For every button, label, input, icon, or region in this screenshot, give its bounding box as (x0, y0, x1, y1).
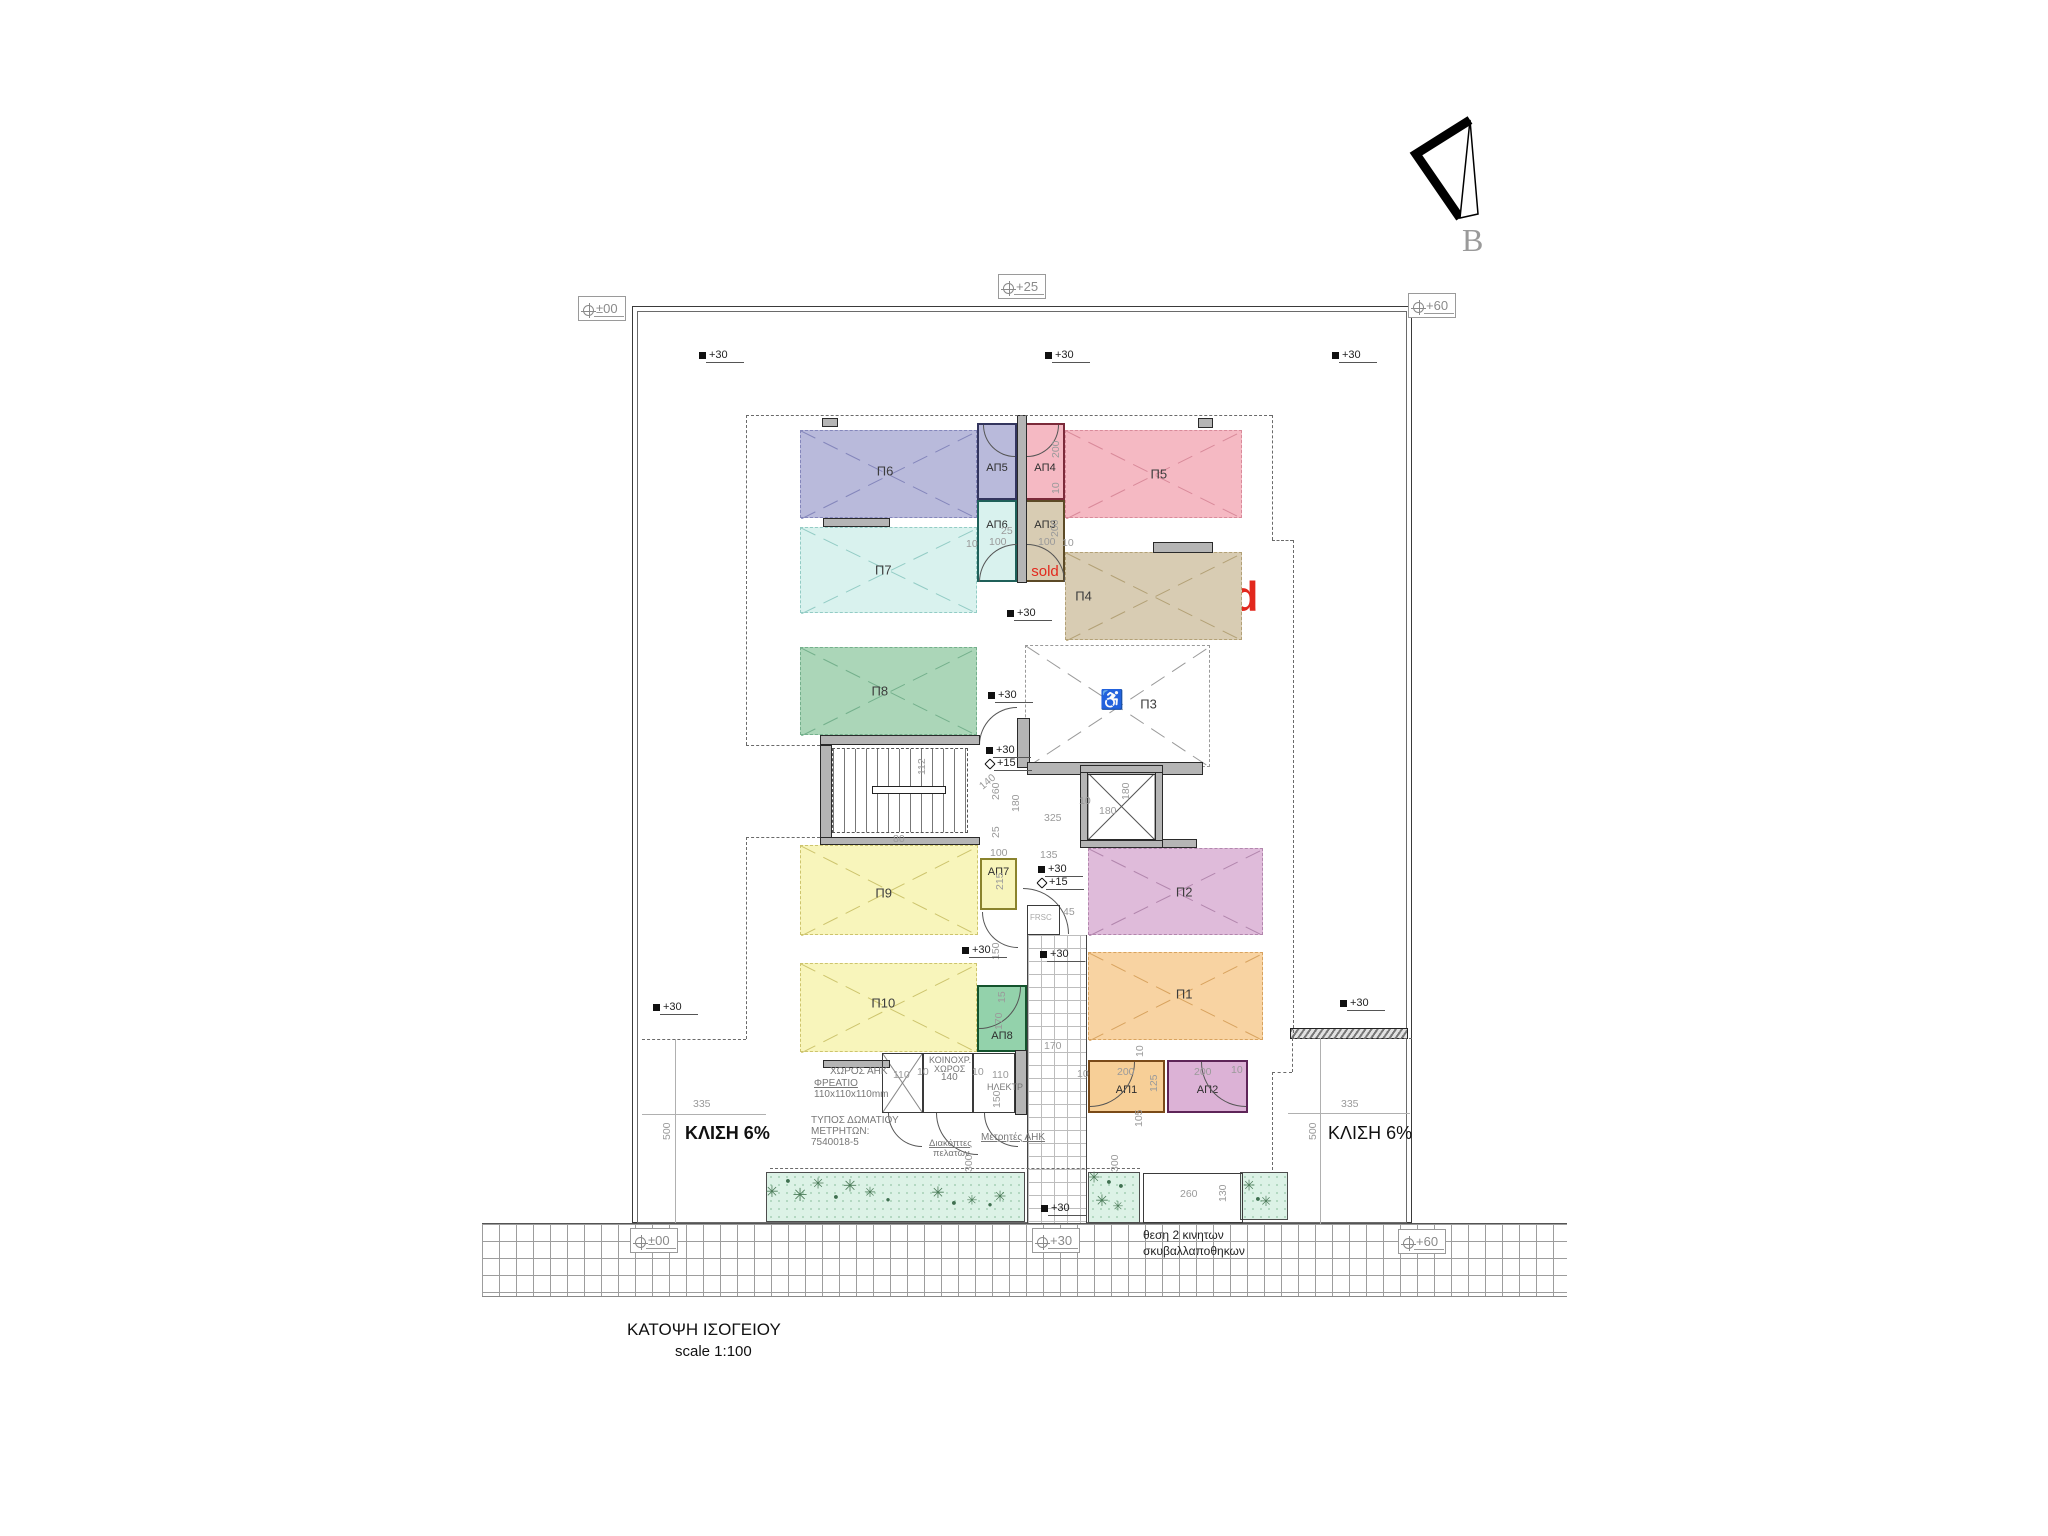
spot-level-icon (1007, 610, 1014, 617)
annotation-text-0: ΚΛΙΣΗ 6% (685, 1123, 770, 1144)
dimension-text-42: 335 (693, 1098, 711, 1110)
elevation-marker-boxed-4: +30 (1032, 1228, 1080, 1253)
dimension-text-20: 215 (994, 872, 1006, 890)
elevation-value: +30 (1048, 1233, 1078, 1249)
parking-stall-P6: Π6 (800, 430, 977, 518)
dimension-text-23: 15 (996, 991, 1008, 1003)
canopy-dashed-line-2 (746, 745, 820, 746)
spot-level-icon (1332, 352, 1339, 359)
dimension-text-1: 10 (1050, 482, 1062, 494)
stall-label-P1: Π1 (1176, 987, 1193, 1002)
parking-stall-P8: Π8 (800, 647, 977, 735)
spot-level-icon (1041, 1205, 1048, 1212)
wall-segment-14 (1080, 840, 1163, 848)
dimension-text-40: 260 (1180, 1188, 1198, 1200)
dimension-text-45: 500 (1307, 1122, 1319, 1140)
canopy-dashed-line-4 (746, 837, 747, 1039)
dimension-line-0 (642, 1114, 766, 1115)
annotation-text-8: ΜΕΤΡΗΤΩΝ: (811, 1126, 869, 1137)
spot-level-value: +30 (1048, 1202, 1086, 1216)
dimension-text-5: 100 (989, 536, 1007, 548)
canopy-dashed-line-9 (1292, 1038, 1412, 1039)
plant-icon-2: ✳ (792, 1186, 807, 1204)
dimension-text-11: 260 (990, 782, 1002, 800)
plant-icon-11: ✳ (994, 1190, 1007, 1205)
spot-level-value: +15 (1046, 876, 1084, 890)
elevation-marker-boxed-2: +60 (1408, 293, 1456, 318)
canopy-dashed-line-12 (1272, 1072, 1273, 1170)
parking-stall-P5: Π5 (1065, 430, 1242, 518)
dimension-line-1 (1288, 1113, 1410, 1114)
dimension-text-14: 10 (1079, 795, 1091, 807)
spot-level-value: +30 (969, 944, 1007, 958)
dimension-text-24: 170 (993, 1012, 1005, 1030)
dimension-text-33: 125 (1148, 1074, 1160, 1092)
plant-icon-3: ✳ (812, 1177, 825, 1192)
stall-cross-lines (1066, 553, 1243, 641)
wall-segment-4 (1153, 542, 1213, 553)
annotation-text-9: 7540018-5 (811, 1137, 859, 1148)
annotation-text-3: σκυβαλλαποθηκων (1143, 1244, 1245, 1258)
dimension-text-17: 25 (990, 826, 1002, 838)
canopy-dashed-line-1 (746, 415, 747, 745)
stall-label-P9: Π9 (875, 885, 892, 900)
storage-room-AP5: ΑΠ5 (977, 423, 1017, 500)
elevation-marker-spot-12: +30 (1340, 997, 1385, 1011)
annotation-text-4: ΧΩΡΟΣ ΑΗΚ (830, 1066, 888, 1077)
plant-icon-18: ✳ (1243, 1179, 1256, 1194)
annotation-text-2: θεση 2 κινητων (1143, 1228, 1224, 1242)
elevation-marker-spot-10: +30 (1040, 948, 1085, 962)
plant-icon-4: ● (833, 1193, 838, 1202)
elevation-value: +25 (1014, 279, 1044, 295)
spot-level-icon (988, 692, 995, 699)
canopy-dashed-line-3 (746, 837, 820, 838)
spot-level-icon (986, 747, 993, 754)
benchmark-icon (635, 1237, 646, 1248)
plant-icon-14: ● (1106, 1178, 1111, 1187)
elevation-marker-spot-4: +30 (988, 689, 1033, 703)
plant-icon-13: ✳ (1088, 1171, 1101, 1186)
spot-level-icon (653, 1004, 660, 1011)
plant-icon-1: ● (785, 1177, 790, 1186)
dimension-text-7: 10 (1062, 537, 1074, 549)
dimension-text-31: 10 (1077, 1068, 1089, 1080)
dimension-text-21: 45 (1063, 906, 1075, 918)
benchmark-icon (1403, 1238, 1414, 1249)
spot-level-value: +30 (993, 744, 1031, 758)
wall-segment-6 (820, 745, 832, 843)
dimension-text-26: 110 (893, 1069, 910, 1081)
elevation-marker-boxed-3: ±00 (630, 1228, 678, 1253)
dimension-text-19: 135 (1040, 849, 1058, 861)
plant-icon-12: ● (988, 1201, 993, 1209)
dimension-line-3 (1320, 1038, 1321, 1224)
annotation-text-6: 110x110x110mm (814, 1089, 889, 1100)
canopy-dashed-line-8 (642, 1039, 746, 1040)
north-arrow-icon (1408, 112, 1500, 232)
dimension-text-0: 200 (1050, 440, 1062, 458)
elevation-marker-spot-11: +30 (653, 1001, 698, 1015)
plant-icon-6: ✳ (864, 1185, 876, 1199)
dimension-text-37: 105 (1133, 1109, 1145, 1127)
dimension-text-15: 180 (1099, 805, 1117, 817)
wall-segment-1 (1198, 418, 1213, 428)
parking-stall-P3: Π3♿ (1025, 645, 1210, 767)
plant-icon-16: ✳ (1095, 1194, 1108, 1210)
elevation-marker-spot-3: +30 (1007, 607, 1052, 621)
elevation-marker-spot-9: +30 (962, 944, 1007, 958)
spot-level-icon (1038, 866, 1045, 873)
drawing-scale: scale 1:100 (675, 1343, 752, 1360)
annotation-text-7: ΤΥΠΟΣ ΔΩΜΑΤΙΟΥ (811, 1115, 899, 1126)
plant-icon-15: ● (1118, 1182, 1123, 1191)
dimension-line-2 (675, 1039, 676, 1223)
dimension-text-27: 10 (917, 1066, 929, 1078)
stall-label-P2: Π2 (1176, 884, 1193, 899)
parking-stall-P1: Π1 (1088, 952, 1263, 1040)
dimension-text-2: 200 (1049, 519, 1061, 537)
elevation-marker-spot-6: +15 (986, 757, 1032, 771)
parking-stall-P7: Π7 (800, 527, 977, 613)
spot-level-icon (1340, 1000, 1347, 1007)
dimension-text-44: 335 (1341, 1098, 1359, 1110)
annotation-text-17: FRSC (1030, 913, 1052, 922)
dimension-text-28: 10 (972, 1066, 984, 1078)
elevation-marker-boxed-5: +60 (1398, 1229, 1446, 1254)
spot-level-icon (699, 352, 706, 359)
wall-segment-5 (820, 735, 980, 745)
dimension-text-13: 325 (1044, 812, 1062, 824)
spot-level-value: +30 (995, 689, 1033, 703)
floor-plan-canvas: B ΚΑΤΟΨΗ ΙΣΟΓΕΙΟΥ scale 1:100 sold Π6 Π5… (0, 0, 2048, 1536)
elevation-value: ±00 (646, 1233, 676, 1249)
plant-icon-7: ● (886, 1196, 891, 1204)
benchmark-icon (1003, 283, 1014, 294)
canopy-dashed-line-5 (1272, 415, 1273, 540)
stall-label-P6: Π6 (877, 464, 894, 479)
plant-icon-5: ✳ (843, 1178, 857, 1195)
dimension-text-9: 80 (893, 833, 905, 845)
canopy-dashed-line-6 (1272, 540, 1293, 541)
spot-level-icon (962, 947, 969, 954)
canopy-dashed-line-7 (1293, 540, 1294, 1038)
dimension-text-4: 10 (966, 538, 978, 550)
plant-icon-20: ✳ (1260, 1194, 1272, 1208)
elevation-marker-spot-8: +15 (1038, 876, 1084, 890)
canopy-dashed-line-11 (1272, 1072, 1292, 1073)
parking-stall-P2: Π2 (1088, 848, 1263, 935)
annotation-text-16: πελατων (933, 1148, 970, 1159)
stall-label-P4: Π4 (1075, 589, 1092, 604)
benchmark-icon (583, 305, 594, 316)
parking-stall-P10: Π10 (800, 963, 977, 1052)
plant-icon-17: ✳ (1113, 1200, 1124, 1213)
spot-level-value: +30 (1014, 607, 1052, 621)
plant-icon-8: ✳ (931, 1186, 944, 1202)
room-label-AP8: ΑΠ8 (991, 1030, 1012, 1042)
elevation-marker-boxed-1: +25 (998, 274, 1046, 299)
dimension-text-8: 112 (916, 758, 928, 775)
dimension-text-39: 300 (1109, 1154, 1121, 1172)
wheelchair-icon: ♿ (1100, 688, 1124, 712)
stall-label-P7: Π7 (875, 563, 892, 578)
canopy-dashed-line-0 (746, 415, 1272, 416)
parking-stall-P4: Π4 (1065, 552, 1242, 640)
drawing-title: ΚΑΤΟΨΗ ΙΣΟΓΕΙΟΥ (627, 1320, 781, 1340)
elevation-marker-spot-2: +30 (1332, 349, 1377, 363)
dimension-text-16: 180 (1120, 782, 1132, 800)
elevation-marker-spot-0: +30 (699, 349, 744, 363)
dimension-text-32: 200 (1117, 1066, 1135, 1078)
elevation-marker-spot-5: +30 (986, 744, 1031, 758)
elevation-marker-boxed-0: ±00 (578, 296, 626, 321)
wall-segment-13 (1080, 765, 1163, 773)
dimension-text-41: 130 (1217, 1184, 1229, 1202)
north-label: B (1462, 222, 1483, 259)
benchmark-icon (1037, 1237, 1048, 1248)
room-outline-0 (882, 1053, 923, 1113)
dimension-text-6: 100 (1038, 536, 1056, 548)
spot-level-value: +30 (1045, 863, 1083, 877)
wall-segment-12 (1155, 765, 1163, 848)
dimension-text-34: 200 (1194, 1066, 1212, 1078)
annotation-text-12: 140 (941, 1072, 958, 1083)
dimension-text-30: 150 (991, 1090, 1003, 1108)
elevation-marker-spot-13: +30 (1041, 1202, 1086, 1216)
plant-icon-0: ✳ (765, 1185, 778, 1201)
canopy-dashed-line-10 (1292, 1038, 1293, 1072)
door-arc (983, 425, 1015, 457)
stall-cross-lines (801, 648, 978, 736)
stall-label-P10: Π10 (871, 996, 895, 1011)
spot-level-value: +30 (1347, 997, 1385, 1011)
spot-level-value: +30 (1339, 349, 1377, 363)
annotation-text-14: Μετρητές ΑΗΚ (981, 1132, 1045, 1143)
spot-level-value: +30 (1047, 948, 1085, 962)
spot-level-value: +30 (660, 1001, 698, 1015)
spot-level-value: +30 (1052, 349, 1090, 363)
stall-label-P5: Π5 (1150, 467, 1167, 482)
wall-segment-0 (822, 418, 838, 427)
spot-level-value: +15 (994, 757, 1032, 771)
stall-label-P8: Π8 (871, 684, 888, 699)
wall-segment-2 (1017, 415, 1027, 583)
elevation-marker-spot-7: +30 (1038, 863, 1083, 877)
wall-segment-3 (823, 518, 890, 527)
dimension-text-35: 10 (1231, 1064, 1243, 1076)
spot-level-value: +30 (706, 349, 744, 363)
plant-icon-10: ✳ (967, 1194, 978, 1207)
dimension-text-25: 170 (1044, 1040, 1062, 1052)
benchmark-icon (1413, 302, 1424, 313)
dimension-text-18: 100 (990, 847, 1008, 859)
elevation-marker-spot-1: +30 (1045, 349, 1090, 363)
annotation-text-13: ΗΛΕΚΤΡ (987, 1082, 1023, 1092)
stall-label-P3: Π3 (1140, 696, 1157, 711)
annotation-text-1: ΚΛΙΣΗ 6% (1328, 1123, 1412, 1144)
elevation-value: +60 (1414, 1234, 1444, 1250)
dimension-text-12: 180 (1010, 794, 1022, 812)
annotation-text-5: ΦΡΕΑΤΙΟ (814, 1078, 858, 1089)
dimension-text-36: 10 (1134, 1045, 1146, 1057)
staircase-handrail (872, 786, 946, 794)
dimension-text-29: 110 (992, 1069, 1009, 1081)
room-label-AP4: ΑΠ4 (1034, 462, 1055, 474)
elevation-value: +60 (1424, 298, 1454, 314)
plant-icon-9: ● (951, 1199, 956, 1208)
dimension-text-43: 500 (661, 1122, 673, 1140)
elevation-value: ±00 (594, 301, 624, 317)
spot-level-icon (1045, 352, 1052, 359)
room-label-AP5: ΑΠ5 (986, 462, 1007, 474)
spot-level-icon (1040, 951, 1047, 958)
canopy-dashed-line-13 (770, 1168, 1140, 1169)
parking-stall-P9: Π9 (800, 845, 978, 935)
